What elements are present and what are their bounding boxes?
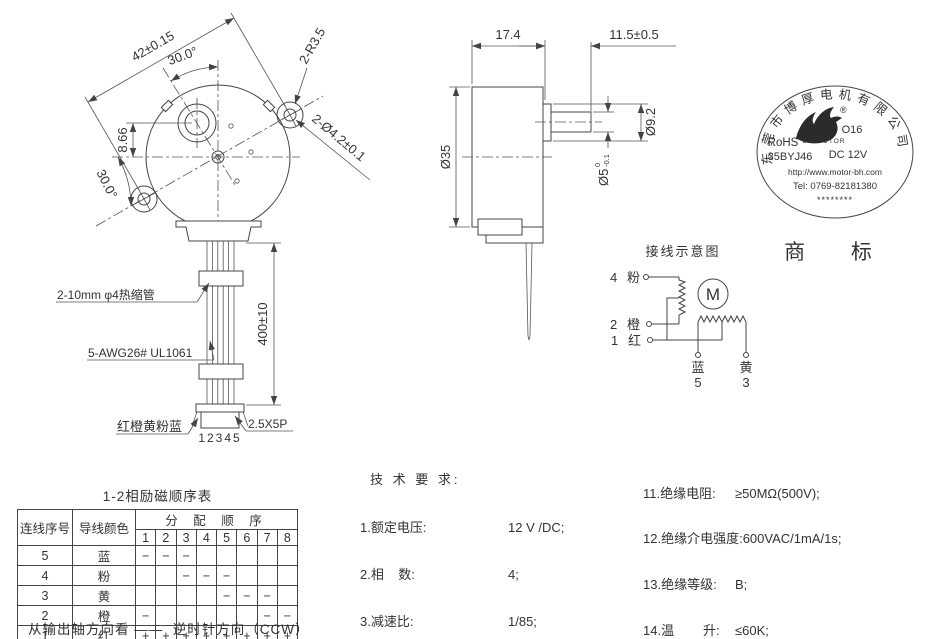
trademark-stamp: 东莞市博厚电机有限公司 ® O16 BH MOTOR RoHS 35BYJ46 …	[757, 86, 913, 218]
col-label: 4	[196, 530, 216, 546]
seq-num-cell: 4	[18, 566, 73, 586]
col-label: 8	[277, 530, 297, 546]
engineering-drawing-sheet: 42±0.15 30.0° 8.66 30.0° 2-R3.5 2-Ø4.2±0…	[0, 0, 930, 639]
terminal-5-color: 蓝	[691, 360, 704, 375]
sign-cell	[196, 546, 216, 566]
terminal-3-number: 3	[742, 375, 749, 390]
stamp-brand: BH MOTOR	[803, 138, 846, 145]
extension-line	[231, 13, 285, 106]
stamp-code: O16	[842, 124, 863, 136]
connector-flange	[196, 404, 244, 412]
sign-cell: −	[217, 566, 237, 586]
stars-row: ********	[817, 195, 853, 205]
sign-cell: −	[217, 586, 237, 606]
sign-cell	[176, 586, 196, 606]
table-row: 4 粉 − − −	[18, 566, 298, 586]
wire-spike	[526, 243, 532, 340]
tech-header: 技 术 要 求:	[360, 472, 650, 488]
sign-cell	[277, 586, 297, 606]
pin-numbers-label: 12345	[198, 431, 241, 445]
terminal-4-number: 4	[610, 270, 617, 285]
dimension-line-42	[88, 18, 234, 102]
hole-centermark	[138, 188, 150, 210]
shaft-boss	[543, 104, 551, 141]
front-view: 42±0.15 30.0° 8.66 30.0° 2-R3.5 2-Ø4.2±0…	[85, 13, 370, 240]
sign-cell	[156, 586, 176, 606]
dim-866-label: 8.66	[115, 127, 130, 152]
ear-radius-label: 2-R3.5	[296, 25, 329, 66]
col-label: 5	[217, 530, 237, 546]
sign-cell	[277, 546, 297, 566]
sign-cell: −	[176, 566, 196, 586]
model-number: 35BYJ46	[768, 151, 813, 163]
rivet-circle	[229, 124, 233, 128]
terminal-dot	[744, 353, 749, 358]
voltage-label: DC 12V	[829, 149, 868, 161]
tech-item: 3.减速比:1/85;	[360, 614, 650, 630]
sign-cell: −	[176, 546, 196, 566]
trademark-heading: 商 标	[784, 241, 892, 264]
tech-item: 2.相 数:4;	[360, 567, 650, 583]
sign-cell	[136, 586, 156, 606]
side-connector-housing	[478, 219, 522, 235]
wire-length-label: 400±10	[255, 302, 270, 345]
shaft-tol-lower: -0.1	[602, 154, 611, 167]
registered-mark: ®	[840, 105, 847, 115]
sign-cell: −	[257, 586, 277, 606]
sign-cell	[237, 566, 257, 586]
header-order: 分 配 顺 序	[136, 510, 298, 530]
shaft-length-label: 11.5±0.5	[609, 27, 659, 42]
tech-item: 13.绝缘等级:B;	[643, 577, 930, 592]
excitation-sequence-block: 1-2相励磁顺序表 连线序号 导线颜色 分 配 顺 序 1 2 3 4 5 6 …	[17, 485, 298, 639]
seq-num-cell: 3	[18, 586, 73, 606]
terminal-4-color: 粉	[627, 270, 640, 285]
col-label: 1	[136, 530, 156, 546]
rotation-direction-note: 从输出轴方向看 —— 逆时针方向（CCW）	[28, 618, 310, 638]
rohs-label: RoHS	[768, 137, 799, 149]
website-url: http://www.motor-bh.com	[788, 167, 882, 177]
sign-cell: −	[237, 586, 257, 606]
sign-cell	[277, 566, 297, 586]
seq-num-cell: 5	[18, 546, 73, 566]
hole-centermark	[284, 104, 296, 126]
wiring-diagram: 接线示意图 商 标 4 粉 2 橙 1 红 蓝 5 黄 3 M	[610, 241, 892, 390]
wiring-title: 接线示意图	[645, 244, 720, 259]
color-cell: 蓝	[73, 546, 136, 566]
sign-cell	[257, 566, 277, 586]
heat-shrink-band	[199, 364, 243, 379]
sign-cell: −	[156, 546, 176, 566]
col-label: 3	[176, 530, 196, 546]
terminal-1-number: 1	[611, 333, 618, 348]
terminal-dot	[644, 275, 649, 280]
coil-b	[698, 316, 746, 322]
terminal-1-color: 红	[628, 333, 641, 348]
terminal-dot	[648, 338, 653, 343]
leader-line	[188, 418, 198, 434]
header-wire-number: 连线序号	[18, 510, 73, 546]
color-cell: 黄	[73, 586, 136, 606]
rivet-circle	[235, 179, 239, 183]
body-length-label: 17.4	[495, 27, 520, 42]
motor-wire-housing	[176, 221, 261, 241]
lead-wire-label: 5-AWG26# UL1061	[88, 346, 193, 360]
header-wire-color: 导线颜色	[73, 510, 136, 546]
tech-requirements-left: 技 术 要 求: 1.额定电压:12 V /DC; 2.相 数:4; 3.减速比…	[360, 441, 650, 639]
telephone: Tel: 0769-82181380	[793, 181, 877, 192]
terminal-dot	[696, 353, 701, 358]
tech-item: 14.温 升:≤60K;	[643, 623, 930, 638]
terminal-2-color: 橙	[627, 317, 640, 332]
tech-item: 12.绝缘介电强度:600VAC/1mA/1s;	[643, 531, 930, 546]
col-label: 7	[257, 530, 277, 546]
sign-cell	[257, 546, 277, 566]
table-row: 5 蓝 − − −	[18, 546, 298, 566]
color-cell: 粉	[73, 566, 136, 586]
sign-cell	[237, 546, 257, 566]
shaft-dia-label: Ø5	[596, 169, 611, 186]
tech-item: 11.绝缘电阻:≥50MΩ(500V);	[643, 486, 930, 501]
wire-assembly: 400±10 2-10mm φ4热缩管 5-AWG26# UL1061 红橙黄粉…	[56, 221, 293, 445]
angle-left-label: 30.0°	[93, 167, 120, 201]
motor-symbol-letter: M	[706, 285, 720, 304]
angle-top-label: 30.0°	[166, 44, 200, 69]
connector-size-label: 2.5X5P	[248, 417, 287, 431]
col-label: 6	[237, 530, 257, 546]
sign-cell	[217, 546, 237, 566]
tech-item: 1.额定电压:12 V /DC;	[360, 520, 650, 536]
wire-bundle	[207, 241, 234, 404]
connector-body	[201, 412, 239, 428]
body-dia-label: Ø35	[438, 145, 453, 170]
terminal-dot	[647, 322, 652, 327]
sign-cell	[196, 586, 216, 606]
rivet-circle	[249, 150, 253, 154]
col-label: 2	[156, 530, 176, 546]
table-title: 1-2相励磁顺序表	[17, 485, 298, 505]
shaft-tol-upper: 0	[593, 163, 602, 167]
coil-a	[679, 277, 685, 318]
boss-dia-label: Ø9.2	[643, 108, 658, 136]
wire-colors-label: 红橙黄粉蓝	[117, 419, 182, 434]
side-view: 17.4 11.5±0.5 Ø35 Ø9.2 Ø5 0 -0.1	[438, 27, 676, 340]
terminal-3-color: 黄	[739, 360, 752, 375]
sign-cell: −	[196, 566, 216, 586]
terminal-5-number: 5	[694, 375, 701, 390]
heat-shrink-band	[199, 271, 243, 286]
shrink-tube-label: 2-10mm φ4热缩管	[57, 287, 155, 302]
angle-arc-top	[171, 67, 218, 81]
leader-line	[295, 68, 307, 104]
table-header-row: 连线序号 导线颜色 分 配 顺 序	[18, 510, 298, 530]
tech-requirements-right: 11.绝缘电阻:≥50MΩ(500V); 12.绝缘介电强度:600VAC/1m…	[643, 455, 930, 639]
sign-cell	[136, 566, 156, 586]
coil-a-center-tap	[667, 298, 679, 340]
terminal-2-number: 2	[610, 317, 617, 332]
sign-cell	[156, 566, 176, 586]
table-row: 3 黄 − − −	[18, 586, 298, 606]
sign-cell: −	[136, 546, 156, 566]
